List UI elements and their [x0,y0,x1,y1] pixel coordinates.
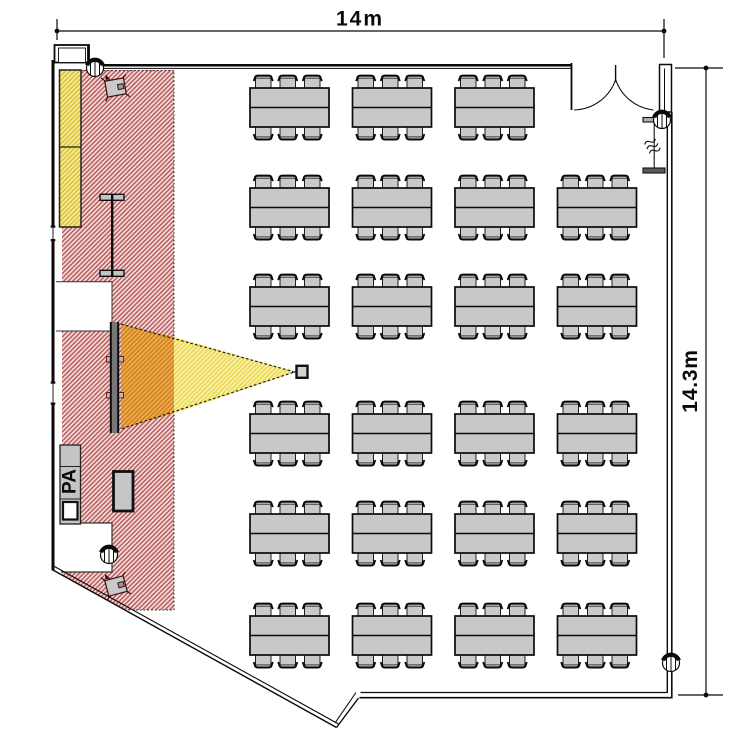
svg-text:14.3m: 14.3m [679,349,702,413]
svg-text:PA: PA [60,469,81,494]
svg-text:14m: 14m [336,8,384,31]
